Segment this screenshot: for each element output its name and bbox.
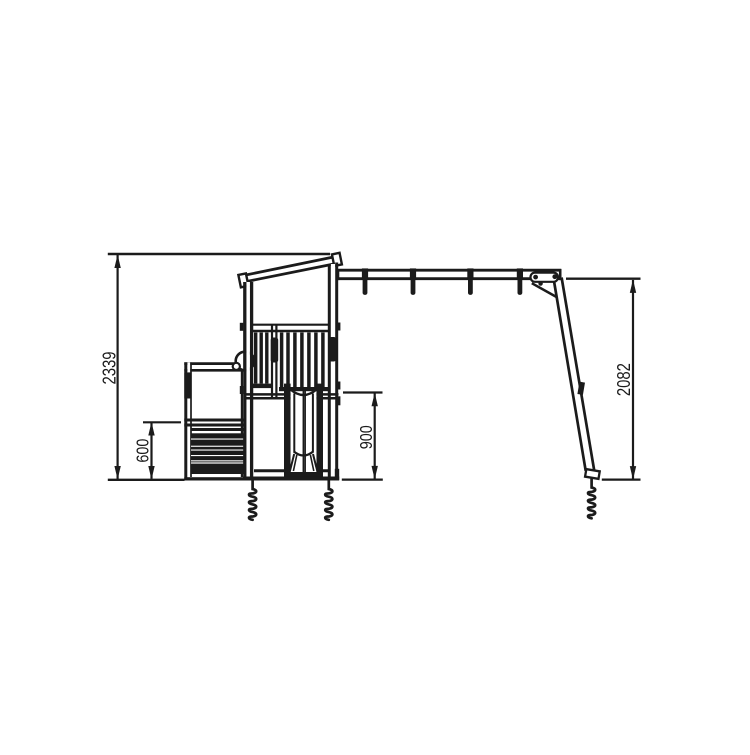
svg-text:600: 600 (133, 438, 153, 462)
svg-text:2339: 2339 (98, 352, 119, 385)
svg-text:900: 900 (356, 425, 376, 449)
svg-text:2082: 2082 (613, 363, 634, 396)
